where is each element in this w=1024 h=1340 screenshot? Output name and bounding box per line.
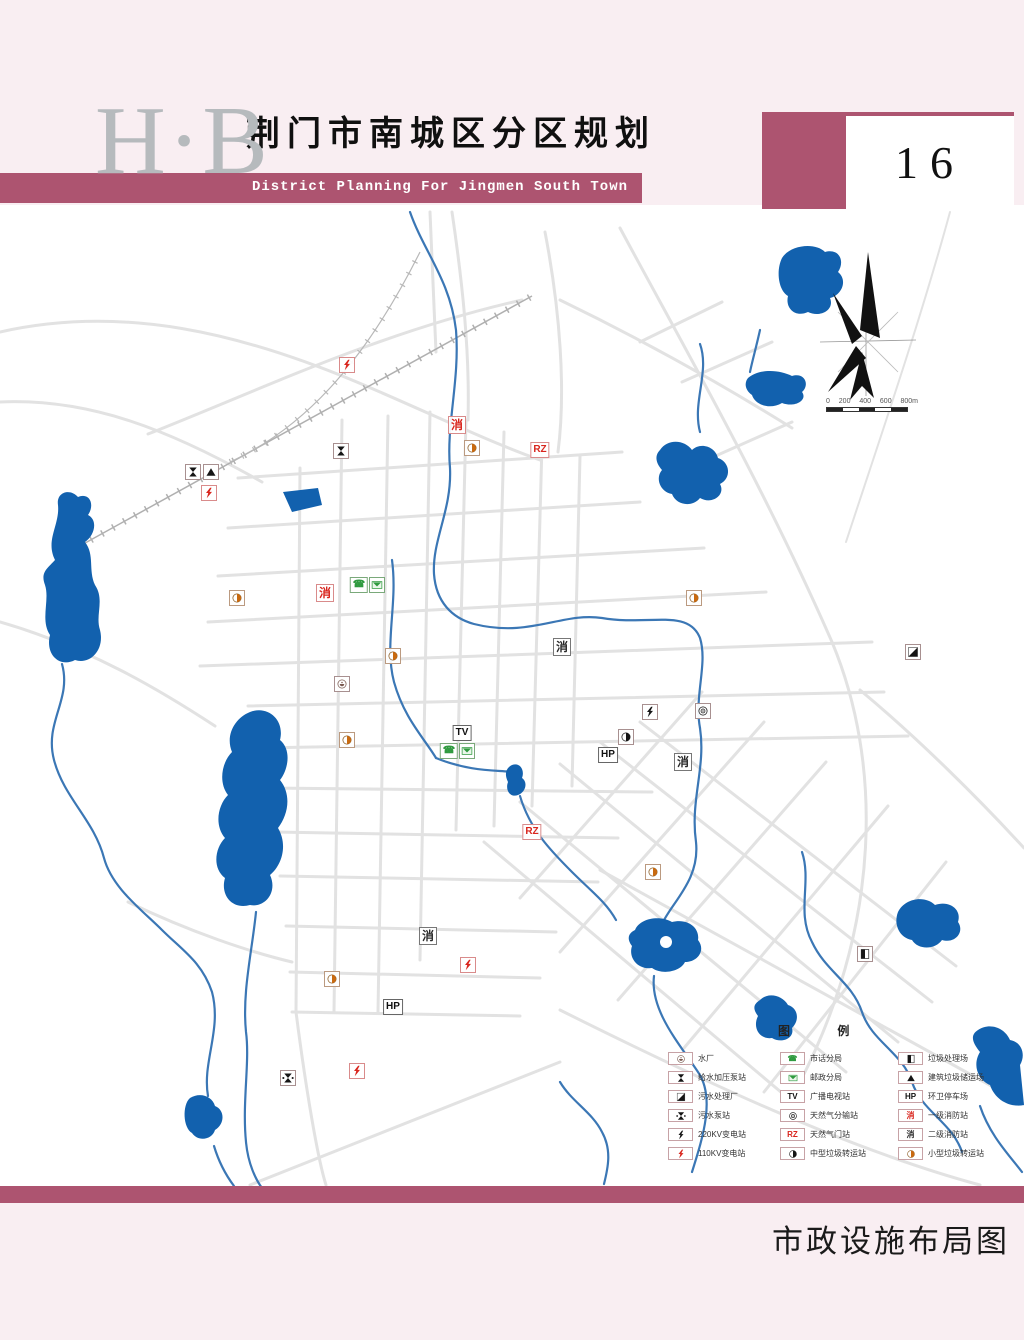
legend-label: 小型垃圾转运站: [928, 1148, 984, 1159]
scale-label: 600: [880, 398, 892, 405]
legend-label: 110KV变电站: [698, 1148, 745, 1159]
scale-label: 800m: [900, 398, 918, 405]
substation-110-icon: [668, 1147, 693, 1160]
legend-column: ☎市话分局邮政分局TV广播电视站天然气分输站RZ天然气门站中型垃圾转运站: [780, 1049, 898, 1163]
legend-label: 水厂: [698, 1053, 714, 1064]
legend-label: 天然气门站: [810, 1129, 850, 1140]
tv-icon: TV: [780, 1090, 805, 1103]
scale-label: 200: [839, 398, 851, 405]
sewage-plant-icon: [668, 1090, 693, 1103]
legend-item: 110KV变电站: [668, 1144, 780, 1163]
page-number-box: 16: [762, 112, 1014, 209]
map-caption: 市政设施布局图: [772, 1216, 1010, 1261]
mail-icon: [780, 1071, 805, 1084]
legend-item: 水厂: [668, 1049, 780, 1068]
legend-label: 广播电视站: [810, 1091, 850, 1102]
legend-columns: 水厂给水加压泵站污水处理厂污水泵站220KV变电站110KV变电站☎市话分局邮政…: [668, 1049, 1020, 1163]
legend-item: HP环卫停车场: [898, 1087, 1020, 1106]
legend-label: 环卫停车场: [928, 1091, 968, 1102]
legend-item: 给水加压泵站: [668, 1068, 780, 1087]
legend-item: 污水处理厂: [668, 1087, 780, 1106]
legend-label: 天然气分输站: [810, 1110, 858, 1121]
scale-label: 400: [859, 398, 871, 405]
gas-dist-icon: [780, 1109, 805, 1122]
gas-gate-icon: RZ: [780, 1128, 805, 1141]
legend-item: 建筑垃圾储运场: [898, 1068, 1020, 1087]
hb-logo: H·B: [95, 92, 270, 190]
scale-bar-labels: 0200400600800m: [826, 398, 918, 405]
hp-icon: HP: [898, 1090, 923, 1103]
legend-item: RZ天然气门站: [780, 1125, 898, 1144]
legend-item: 垃圾处理场: [898, 1049, 1020, 1068]
pump-sewage-icon: [668, 1109, 693, 1122]
legend-label: 建筑垃圾储运场: [928, 1072, 984, 1083]
construction-waste-icon: [898, 1071, 923, 1084]
fire-1-icon: 消: [898, 1109, 923, 1122]
legend-label: 污水处理厂: [698, 1091, 738, 1102]
water-plant-icon: [668, 1052, 693, 1065]
substation-220-icon: [668, 1128, 693, 1141]
legend-item: 天然气分输站: [780, 1106, 898, 1125]
legend-item: 邮政分局: [780, 1068, 898, 1087]
pump-water-icon: [668, 1071, 693, 1084]
map-legend: 图 例 水厂给水加压泵站污水处理厂污水泵站220KV变电站110KV变电站☎市话…: [668, 1022, 1020, 1163]
page-subtitle: District Planning For Jingmen South Town: [252, 179, 628, 195]
legend-item: ☎市话分局: [780, 1049, 898, 1068]
garbage-mid-icon: [780, 1147, 805, 1160]
legend-title: 图 例: [778, 1022, 1020, 1039]
legend-column: 垃圾处理场建筑垃圾储运场HP环卫停车场消一级消防站消二级消防站小型垃圾转运站: [898, 1049, 1020, 1163]
legend-label: 中型垃圾转运站: [810, 1148, 866, 1159]
legend-item: TV广播电视站: [780, 1087, 898, 1106]
garbage-small-icon: [898, 1147, 923, 1160]
legend-label: 污水泵站: [698, 1110, 730, 1121]
legend-label: 220KV变电站: [698, 1129, 746, 1140]
legend-item: 污水泵站: [668, 1106, 780, 1125]
garbage-site-icon: [898, 1052, 923, 1065]
accent-block: [762, 116, 846, 209]
legend-item: 小型垃圾转运站: [898, 1144, 1020, 1163]
legend-column: 水厂给水加压泵站污水处理厂污水泵站220KV变电站110KV变电站: [668, 1049, 780, 1163]
page-title: 荆门市南城区分区规划: [246, 106, 656, 155]
phone-icon: ☎: [780, 1052, 805, 1065]
legend-item: 消一级消防站: [898, 1106, 1020, 1125]
legend-label: 垃圾处理场: [928, 1053, 968, 1064]
page-number: 16: [846, 116, 1014, 209]
fire-2-icon: 消: [898, 1128, 923, 1141]
legend-label: 给水加压泵站: [698, 1072, 746, 1083]
legend-item: 消二级消防站: [898, 1125, 1020, 1144]
legend-item: 220KV变电站: [668, 1125, 780, 1144]
legend-label: 邮政分局: [810, 1072, 842, 1083]
scale-bar-graphic: [826, 407, 908, 412]
legend-label: 二级消防站: [928, 1129, 968, 1140]
legend-label: 市话分局: [810, 1053, 842, 1064]
legend-label: 一级消防站: [928, 1110, 968, 1121]
scale-label: 0: [826, 398, 830, 405]
legend-item: 中型垃圾转运站: [780, 1144, 898, 1163]
scale-bar: 0200400600800m: [826, 398, 926, 412]
footer-band: [0, 1186, 1024, 1203]
lake-island: [660, 936, 672, 948]
